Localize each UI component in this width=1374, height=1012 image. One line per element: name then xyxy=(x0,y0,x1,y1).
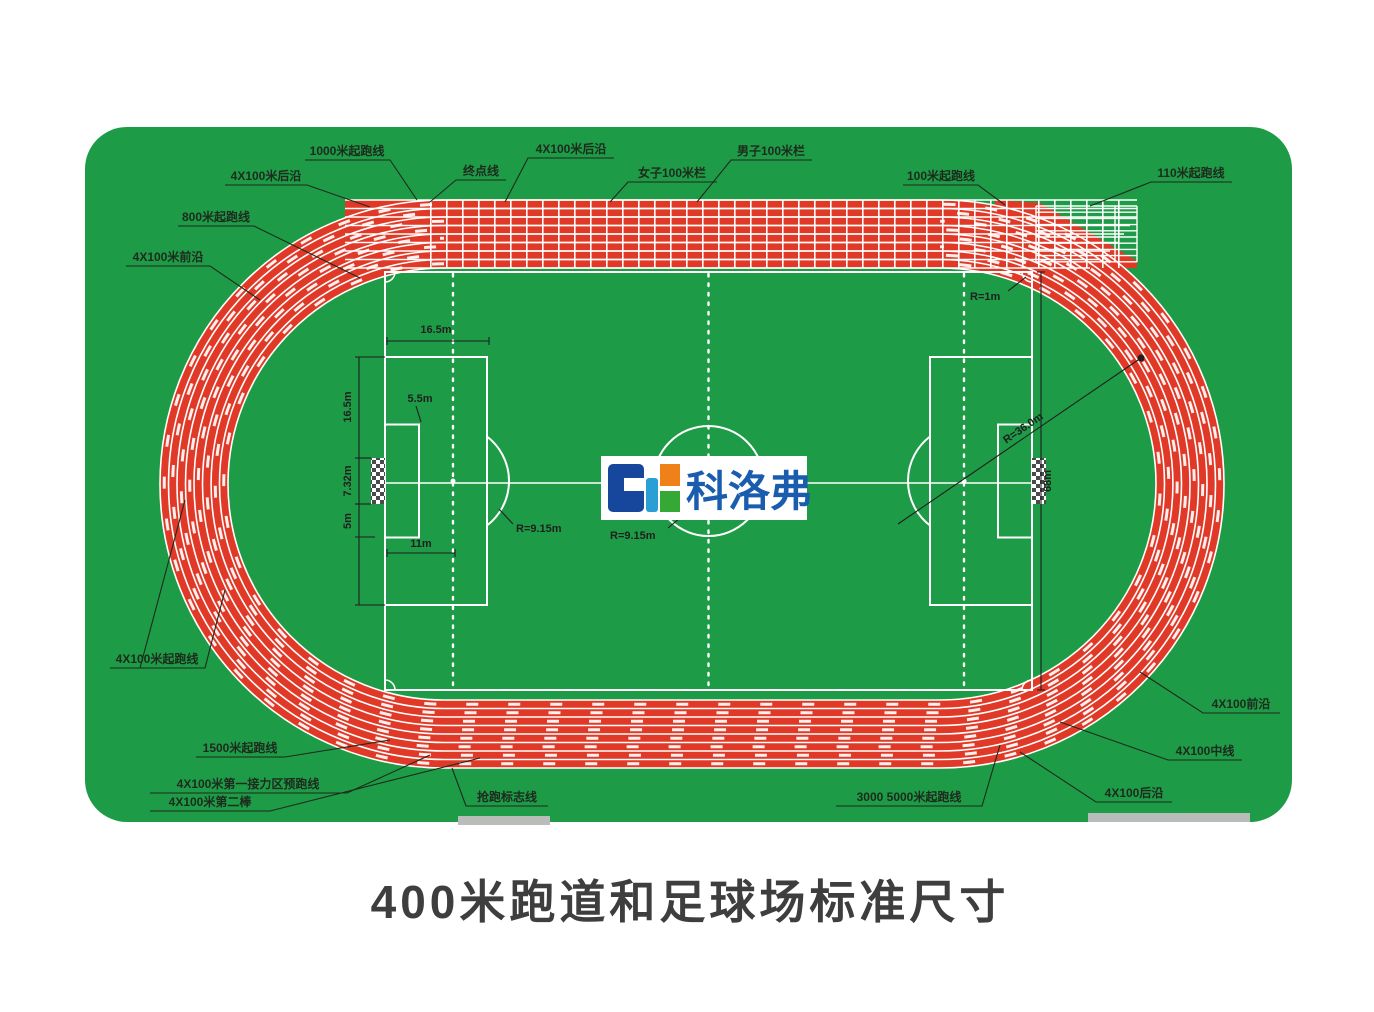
logo-mark-green-square xyxy=(660,491,680,512)
dim-field-width: 68m xyxy=(1042,470,1054,492)
label-4x100-rear-right: 4X100后沿 xyxy=(1105,785,1164,800)
label-4x100-mid-right: 4X100中线 xyxy=(1176,743,1235,758)
label-4x100-second-leg: 4X100米第二棒 xyxy=(169,794,253,809)
logo-mark-notch xyxy=(624,478,644,491)
label-100m-start: 100米起跑线 xyxy=(907,168,975,183)
dim-goal-margin: 5m xyxy=(342,513,354,529)
label-3000-5000-start: 3000 5000米起跑线 xyxy=(857,789,962,804)
dim-penalty-side: 16.5m xyxy=(342,391,354,422)
label-men-100m-hurdles: 男子100米栏 xyxy=(737,143,805,158)
goal-left xyxy=(371,458,385,504)
label-4x100-first-relay-zone: 4X100米第一接力区预跑线 xyxy=(177,776,320,791)
brand-logo: 科洛弗 xyxy=(601,456,812,520)
label-1000m-start: 1000米起跑线 xyxy=(310,143,385,158)
logo-mark-orange-square xyxy=(660,464,680,486)
logo-brand-text: 科洛弗 xyxy=(686,468,812,515)
diagram-canvas: 16.5m 5.5m 16.5m 7.32m 5m 11m R=9.15m R=… xyxy=(0,0,1374,1012)
dim-penalty-spot: 11m xyxy=(410,538,432,550)
shadow-bar-left xyxy=(458,816,550,825)
label-4x100-front-right: 4X100前沿 xyxy=(1212,696,1271,711)
dim-penalty-depth: 16.5m xyxy=(420,324,451,336)
label-800m-start: 800米起跑线 xyxy=(182,209,250,224)
label-break-mark-line: 抢跑标志线 xyxy=(477,789,537,804)
label-4x100-rear-top: 4X100米后沿 xyxy=(536,141,607,156)
track-and-field-diagram: 16.5m 5.5m 16.5m 7.32m 5m 11m R=9.15m R=… xyxy=(0,0,1374,1012)
page-title: 400米跑道和足球场标准尺寸 xyxy=(371,876,1010,928)
dim-goal-width: 7.32m xyxy=(342,465,354,496)
dim-penalty-arc: R=9.15m xyxy=(516,523,562,535)
dim-goal-area-depth: 5.5m xyxy=(407,393,432,405)
shadow-bar-right xyxy=(1088,813,1250,822)
label-4x100-front-left: 4X100米前沿 xyxy=(133,249,204,264)
label-1500m-start: 1500米起跑线 xyxy=(203,740,278,755)
dim-corner-arc: R=1m xyxy=(970,291,1000,303)
label-110m-start: 110米起跑线 xyxy=(1157,165,1224,180)
label-4x100-start: 4X100米起跑线 xyxy=(116,651,199,666)
label-4x100-rear-left: 4X100米后沿 xyxy=(231,168,302,183)
label-finish-line: 终点线 xyxy=(463,163,499,178)
dim-center-circle: R=9.15m xyxy=(610,530,656,542)
label-women-100m-hurdles: 女子100米栏 xyxy=(638,165,706,180)
logo-mark-cyan-bar xyxy=(646,478,658,512)
